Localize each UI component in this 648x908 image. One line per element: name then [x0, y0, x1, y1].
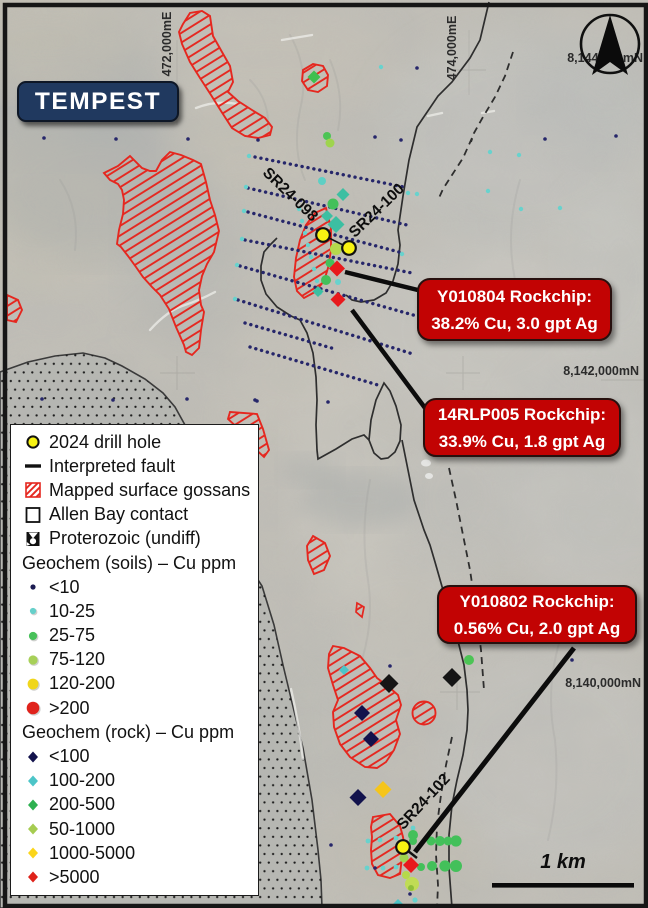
svg-text:8,140,000mN: 8,140,000mN	[565, 676, 641, 690]
svg-text:474,000mE: 474,000mE	[445, 16, 459, 81]
svg-text:1 km: 1 km	[540, 851, 586, 873]
svg-text:8,142,000mN: 8,142,000mN	[563, 364, 639, 378]
svg-text:472,000mE: 472,000mE	[160, 12, 174, 77]
